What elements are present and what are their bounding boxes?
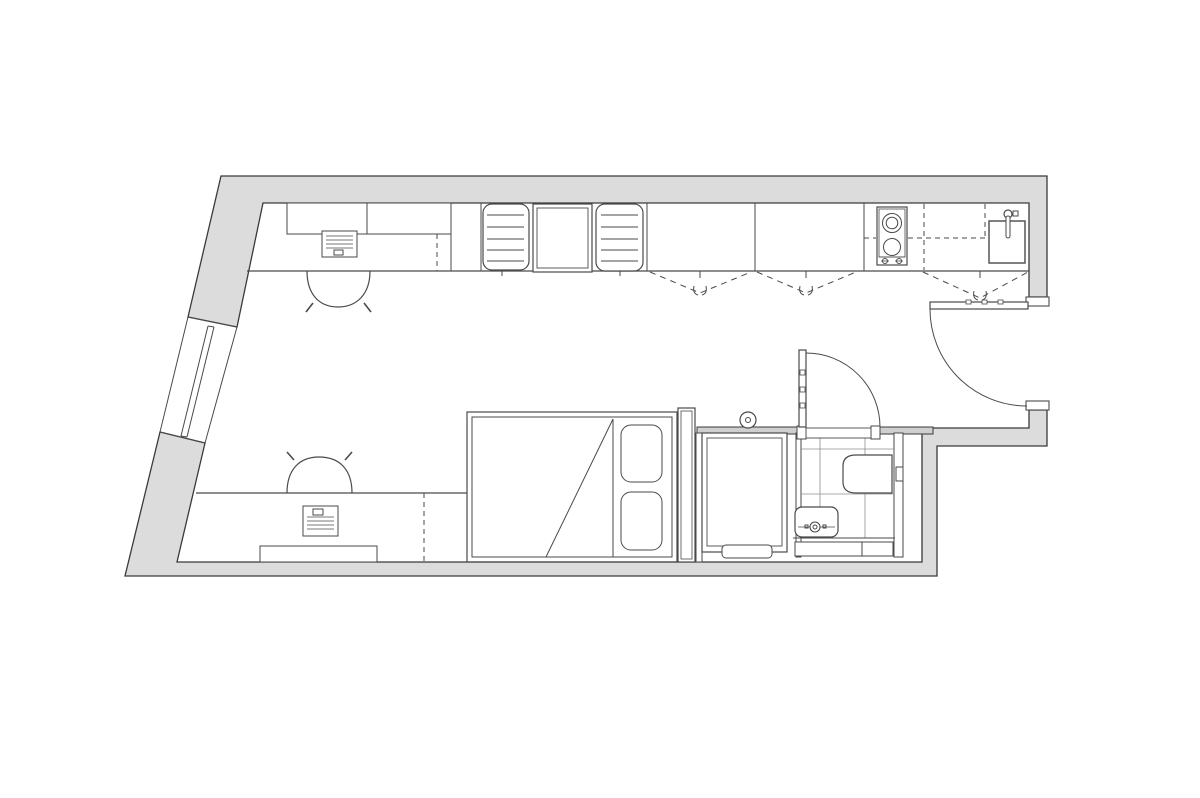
bed-frame bbox=[467, 412, 677, 562]
bed-duvet-fold bbox=[546, 419, 613, 557]
sink-drainer bbox=[483, 204, 529, 270]
small-sink-tap-handle bbox=[1013, 211, 1018, 216]
entrance-door-leaf bbox=[930, 302, 1028, 309]
bathroom-door-hinge bbox=[800, 370, 805, 375]
bath-wall-east bbox=[894, 433, 903, 557]
window-glazing-cap bbox=[208, 326, 214, 327]
entrance-door-jamb bbox=[1026, 297, 1049, 306]
bed-headboard bbox=[678, 408, 695, 562]
desk-chair-leg bbox=[345, 452, 352, 460]
bathroom-door-hinge bbox=[800, 387, 805, 392]
small-sink-tap-spout bbox=[1006, 216, 1010, 238]
door-dash-hook bbox=[800, 286, 804, 295]
vanity-cabinet bbox=[795, 542, 893, 556]
bed-mattress bbox=[472, 417, 672, 557]
desk-chair bbox=[307, 271, 370, 307]
entry-cabinet-door-dash bbox=[923, 272, 1028, 298]
partition-bath-north bbox=[880, 427, 933, 434]
bathroom-door-jamb bbox=[871, 426, 880, 439]
wall-cabinet bbox=[287, 203, 367, 234]
entrance-door-hinge bbox=[998, 300, 1003, 304]
desk-chair-leg bbox=[364, 303, 371, 312]
kitchen-sink-basin bbox=[533, 204, 592, 272]
window-glazing-line bbox=[187, 327, 214, 437]
bathroom-door-hinge bbox=[800, 403, 805, 408]
desk-chair-leg bbox=[287, 452, 294, 460]
bed-pillow bbox=[621, 492, 662, 550]
shower-mat bbox=[722, 545, 772, 558]
entrance-door-jamb bbox=[1026, 401, 1049, 410]
bathroom-door-swing-arc bbox=[806, 353, 880, 427]
bath-wall-west bbox=[696, 433, 702, 562]
laptop-trackpad bbox=[334, 250, 343, 255]
door-dash-hook bbox=[974, 291, 978, 300]
washbasin-tap bbox=[810, 522, 820, 532]
floor-plan bbox=[0, 0, 1200, 798]
hob bbox=[877, 207, 907, 265]
shower-head bbox=[740, 412, 756, 428]
bathroom-door-threshold bbox=[806, 428, 871, 438]
entrance-door-hinge bbox=[982, 300, 987, 304]
entrance-door-hinge bbox=[966, 300, 971, 304]
window-frame-line bbox=[160, 317, 188, 432]
bed-pillow bbox=[621, 425, 662, 482]
bathroom-door-jamb bbox=[797, 426, 806, 439]
floor-plan-canvas bbox=[0, 0, 1200, 798]
window-glazing-line bbox=[181, 326, 208, 436]
desk-chair bbox=[287, 457, 352, 493]
wall-cabinet bbox=[367, 203, 451, 234]
door-dash-hook bbox=[808, 286, 812, 295]
toilet-flush-plate bbox=[896, 467, 903, 481]
desk-pedestal bbox=[260, 546, 377, 562]
laptop-trackpad bbox=[313, 509, 323, 515]
door-dash-hook bbox=[702, 286, 706, 295]
desk-chair-leg bbox=[306, 303, 313, 312]
shower-tray bbox=[702, 433, 787, 552]
toilet-bowl bbox=[843, 455, 892, 493]
door-dash-hook bbox=[694, 286, 698, 295]
entrance-door-swing-arc bbox=[930, 309, 1027, 406]
